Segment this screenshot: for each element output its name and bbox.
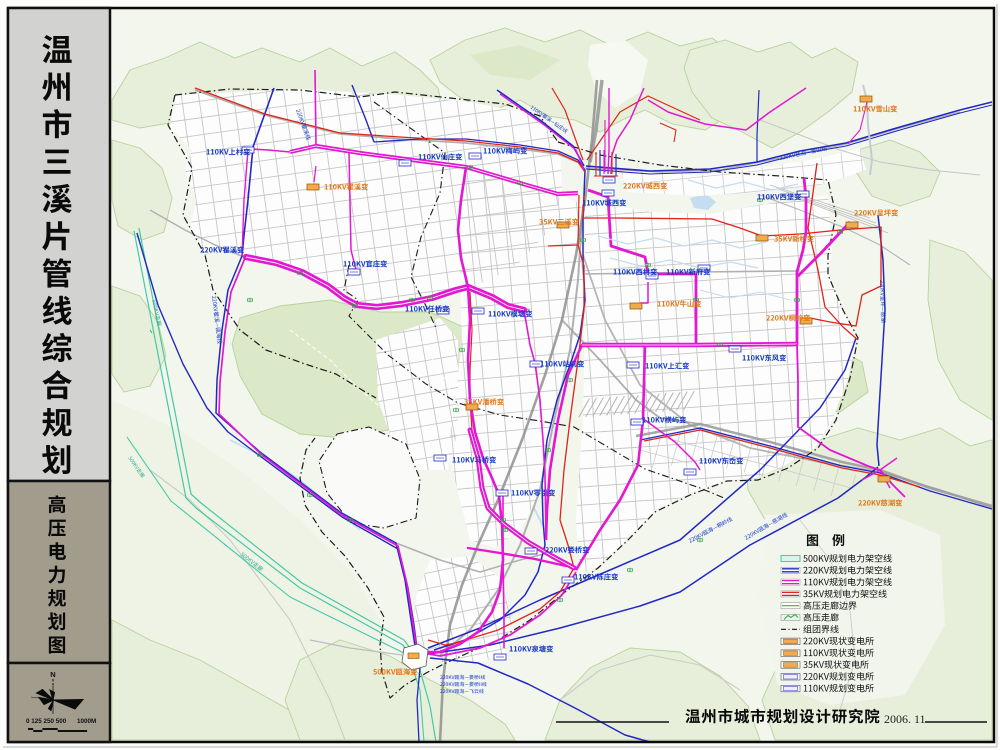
svg-text:0 125 250 500: 0 125 250 500 [26,718,67,725]
svg-text:2006. 11: 2006. 11 [884,712,926,726]
svg-text:N: N [50,670,55,679]
svg-text:1000M: 1000M [77,718,96,725]
